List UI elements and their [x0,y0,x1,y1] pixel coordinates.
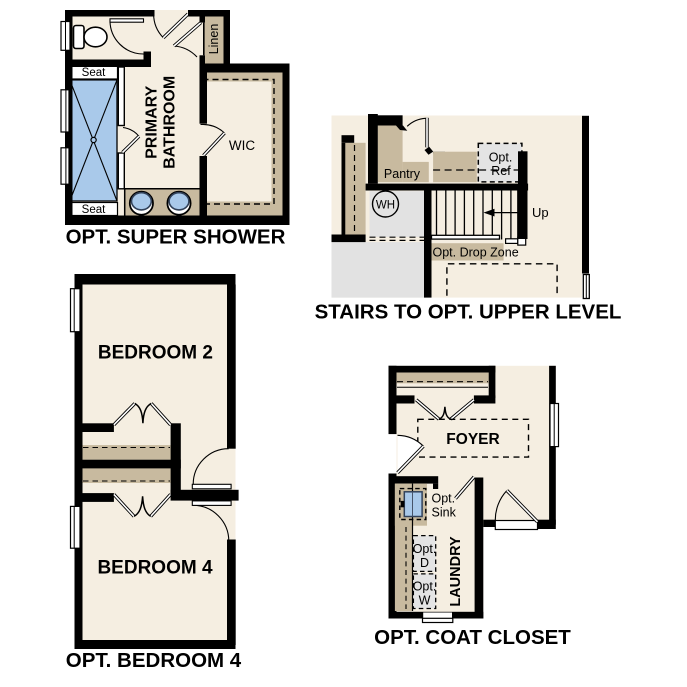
svg-text:PRIMARY: PRIMARY [144,85,161,159]
svg-text:Pantry: Pantry [384,167,421,181]
svg-text:Opt.: Opt. [413,580,437,594]
svg-text:Seat: Seat [82,204,106,216]
svg-text:Opt. Drop Zone: Opt. Drop Zone [433,245,519,259]
svg-text:W: W [419,594,431,608]
svg-text:STAIRS TO OPT. UPPER LEVEL: STAIRS TO OPT. UPPER LEVEL [315,301,622,324]
svg-text:Opt.: Opt. [489,151,513,165]
svg-text:OPT. BEDROOM 4: OPT. BEDROOM 4 [66,649,242,672]
svg-text:FOYER: FOYER [446,431,499,448]
svg-text:Linen: Linen [207,24,221,55]
svg-text:OPT. SUPER SHOWER: OPT. SUPER SHOWER [66,226,286,249]
svg-text:OPT. COAT CLOSET: OPT. COAT CLOSET [374,626,571,649]
svg-text:WIC: WIC [229,138,255,153]
svg-text:D: D [420,556,429,570]
svg-text:Opt.: Opt. [413,542,437,556]
svg-text:BEDROOM 2: BEDROOM 2 [98,343,213,364]
svg-text:BATHROOM: BATHROOM [162,76,179,169]
svg-text:BEDROOM 4: BEDROOM 4 [97,558,213,579]
svg-text:Sink: Sink [432,506,457,520]
svg-text:LAUNDRY: LAUNDRY [448,536,464,607]
svg-text:Opt.: Opt. [432,492,456,506]
svg-text:WH: WH [376,199,395,211]
svg-text:Ref: Ref [491,164,511,178]
svg-text:Seat: Seat [82,67,106,79]
svg-text:Up: Up [532,205,549,220]
